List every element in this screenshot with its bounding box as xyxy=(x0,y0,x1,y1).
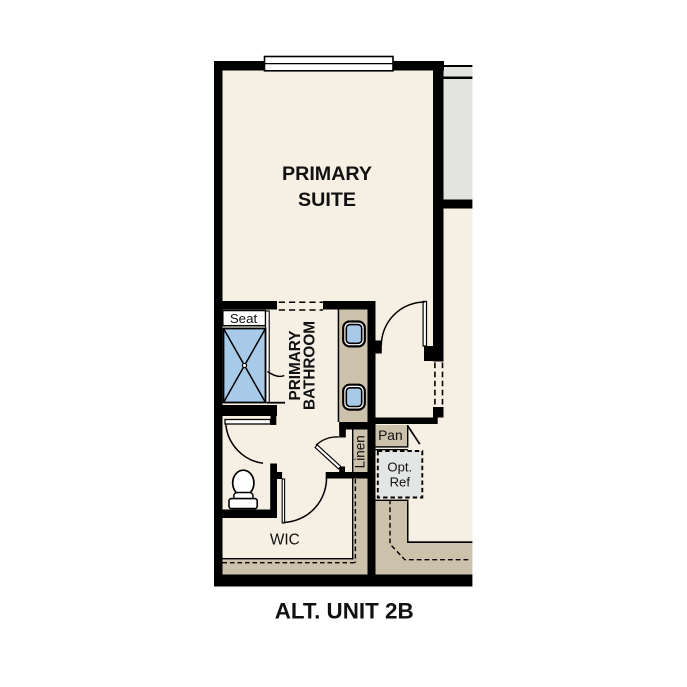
svg-text:SUITE: SUITE xyxy=(298,189,356,211)
svg-text:Pan: Pan xyxy=(378,428,403,443)
svg-text:BATHROOM: BATHROOM xyxy=(301,321,318,410)
svg-text:ALT. UNIT 2B: ALT. UNIT 2B xyxy=(275,599,414,624)
svg-text:Linen: Linen xyxy=(352,435,367,468)
svg-text:Seat: Seat xyxy=(230,311,258,326)
svg-text:PRIMARY: PRIMARY xyxy=(282,163,372,185)
svg-text:WIC: WIC xyxy=(270,532,300,549)
svg-text:Opt.: Opt. xyxy=(387,459,412,474)
svg-text:Ref: Ref xyxy=(390,475,411,490)
